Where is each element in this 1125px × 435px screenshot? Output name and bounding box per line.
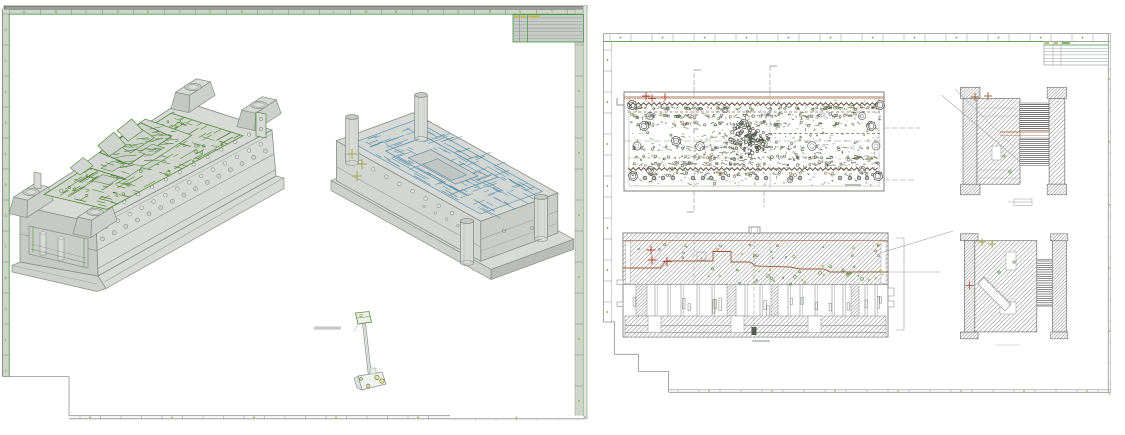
- svg-text:L: L: [333, 10, 335, 14]
- svg-text:Q: Q: [457, 10, 460, 14]
- svg-text:J: J: [271, 10, 273, 14]
- svg-text:8: 8: [5, 276, 7, 280]
- svg-text:2: 2: [5, 90, 7, 94]
- svg-text:1: 1: [5, 59, 7, 63]
- svg-text:T: T: [551, 10, 553, 14]
- svg-text:7: 7: [5, 245, 7, 249]
- svg-text:0: 0: [5, 28, 7, 32]
- svg-text:2: 2: [5, 369, 7, 373]
- svg-text:1: 1: [5, 338, 7, 342]
- svg-text:0: 0: [5, 307, 7, 311]
- svg-text:5: 5: [5, 183, 7, 187]
- svg-text:G: G: [209, 10, 212, 14]
- svg-text:3: 3: [5, 121, 7, 125]
- svg-text:F: F: [179, 10, 181, 14]
- svg-text:6: 6: [5, 214, 7, 218]
- svg-text:M: M: [365, 10, 368, 14]
- svg-text:4: 4: [5, 152, 7, 156]
